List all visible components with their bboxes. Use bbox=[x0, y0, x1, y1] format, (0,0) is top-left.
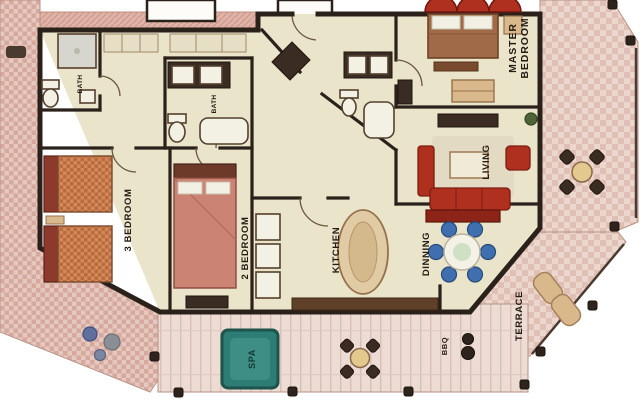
floorplan-image: MASTER BEDROOM LIVING DINNING KITCHEN 2 … bbox=[0, 0, 640, 417]
label-master-line2: BEDROOM bbox=[519, 17, 531, 78]
tv-console-icon bbox=[438, 114, 498, 127]
tv-cabinet-icon bbox=[398, 80, 412, 104]
deck-step bbox=[6, 46, 26, 58]
toilet-icon bbox=[168, 114, 186, 142]
shower-drain-icon bbox=[74, 48, 80, 54]
label-bbq: BBQ bbox=[440, 337, 449, 355]
counter-icon bbox=[256, 272, 280, 298]
bathtub-icon bbox=[364, 102, 394, 138]
kitchen-island-icon bbox=[338, 210, 388, 294]
bed-icon bbox=[44, 156, 112, 212]
bathtub-icon bbox=[200, 118, 248, 144]
room-bedroom2 bbox=[174, 164, 236, 308]
bed-icon bbox=[44, 226, 112, 282]
label-bath-left: BATH bbox=[77, 75, 84, 94]
label-bath-middle: BATH bbox=[211, 95, 218, 114]
label-master-bedroom: MASTER BEDROOM bbox=[507, 17, 531, 78]
bay-window-left bbox=[147, 0, 215, 21]
armchair-icon bbox=[506, 146, 530, 170]
kitchen-counter-icon bbox=[292, 298, 438, 310]
label-terrace: TERRACE bbox=[514, 291, 525, 341]
label-bedroom3: 3 BEDROOM bbox=[123, 189, 134, 252]
double-sink-icon bbox=[344, 52, 392, 78]
label-spa: SPA bbox=[247, 349, 257, 369]
sideboard-icon bbox=[426, 210, 500, 222]
plant-icon bbox=[525, 113, 537, 125]
label-kitchen: KITCHEN bbox=[331, 227, 342, 273]
terrace-right bbox=[540, 0, 638, 232]
label-dinning: DINNING bbox=[421, 232, 432, 276]
label-bedroom2: 2 BEDROOM bbox=[240, 217, 251, 280]
double-sink-icon bbox=[168, 62, 230, 88]
floorplan-svg: MASTER BEDROOM LIVING DINNING KITCHEN 2 … bbox=[0, 0, 640, 417]
bed-icon bbox=[174, 164, 236, 288]
counter-icon bbox=[256, 244, 280, 268]
sofa-icon bbox=[430, 188, 510, 210]
toilet-icon bbox=[42, 80, 59, 107]
label-living: LIVING bbox=[481, 144, 492, 179]
hall-closets bbox=[104, 34, 246, 52]
dresser-icon bbox=[186, 296, 228, 308]
headboard-icon bbox=[425, 0, 521, 12]
toilet-icon bbox=[340, 90, 358, 116]
label-master-line1: MASTER bbox=[507, 23, 519, 73]
nightstand-icon bbox=[46, 216, 64, 224]
fridge-icon bbox=[256, 214, 280, 240]
